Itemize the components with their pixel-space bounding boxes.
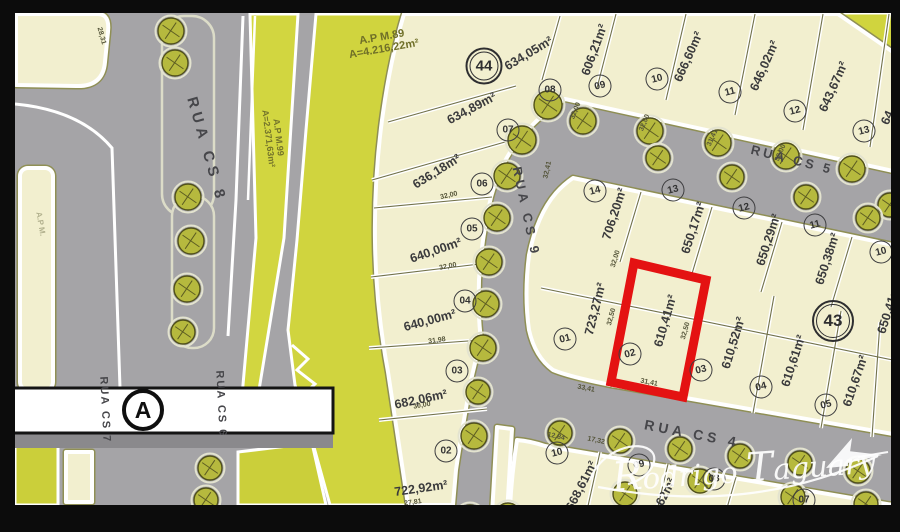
tree-icon bbox=[854, 204, 883, 233]
tree-icon bbox=[176, 226, 207, 257]
tree-icon bbox=[703, 128, 734, 159]
block-left-strip bbox=[20, 168, 53, 390]
tree-icon bbox=[837, 154, 868, 185]
section-street-bar bbox=[13, 388, 333, 433]
tree-icon bbox=[474, 247, 505, 278]
tree-icon bbox=[726, 442, 755, 471]
tree-icon bbox=[173, 182, 204, 213]
tree-icon bbox=[172, 274, 203, 305]
tree-icon bbox=[459, 421, 490, 452]
tree-icon bbox=[160, 48, 191, 79]
tree-icon bbox=[506, 124, 539, 157]
photo-frame-left bbox=[0, 0, 15, 532]
tree-icon bbox=[568, 106, 599, 137]
tree-icon bbox=[792, 183, 821, 212]
photo-frame-right bbox=[891, 0, 900, 532]
site-plan-map: RUA CS 8RUA CS 9RUA CS 5RUA CS 4RUA CS 7… bbox=[0, 0, 900, 532]
tree-icon bbox=[532, 89, 565, 122]
tree-icon bbox=[471, 289, 502, 320]
tree-icon bbox=[771, 141, 802, 172]
green-block-far-left bbox=[15, 445, 58, 505]
block-left-small-strip bbox=[66, 452, 92, 502]
tree-icon bbox=[156, 16, 187, 47]
tree-icon bbox=[482, 203, 513, 234]
tree-icon bbox=[686, 467, 715, 496]
tree-icon bbox=[666, 435, 695, 464]
tree-icon bbox=[464, 378, 493, 407]
tree-icon bbox=[492, 161, 523, 192]
green-block-bottom-left bbox=[238, 443, 326, 505]
tree-icon bbox=[718, 163, 747, 192]
tree-icon bbox=[644, 144, 673, 173]
tree-icon bbox=[606, 427, 635, 456]
tree-icon bbox=[844, 457, 873, 486]
bar-shadow bbox=[15, 433, 333, 448]
tree-icon bbox=[546, 419, 575, 448]
map-base bbox=[0, 0, 900, 532]
tree-icon bbox=[635, 116, 666, 147]
tree-icon bbox=[468, 333, 499, 364]
photo-frame-bottom bbox=[0, 505, 900, 532]
tree-icon bbox=[786, 449, 815, 478]
tree-icon bbox=[169, 318, 198, 347]
photo-frame-top bbox=[0, 0, 900, 13]
tree-icon bbox=[196, 454, 225, 483]
block-top-left bbox=[16, 14, 108, 86]
